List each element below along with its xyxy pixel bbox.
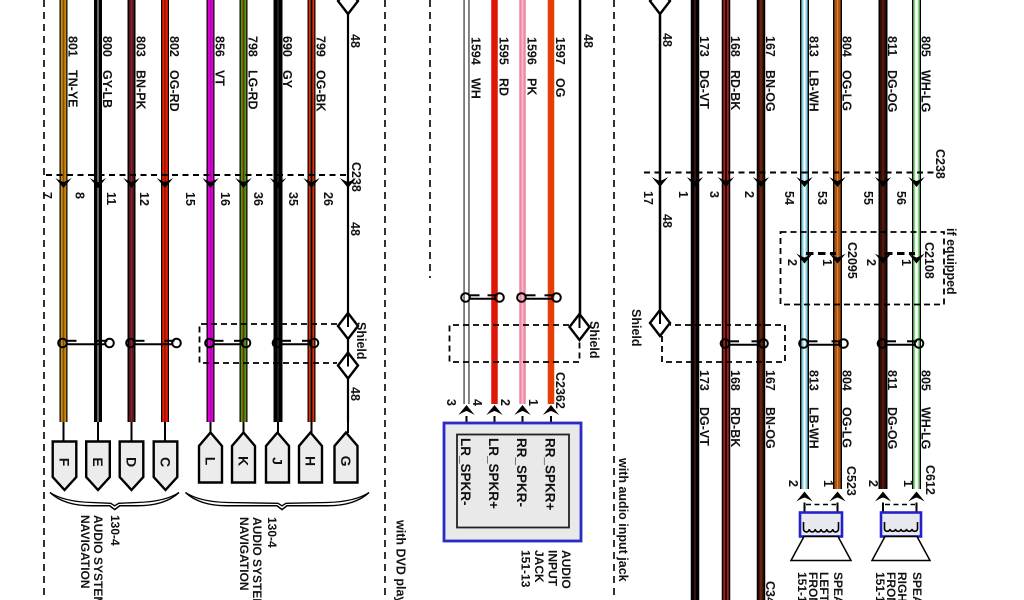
svg-text:48: 48 (660, 214, 674, 228)
svg-text:DG-VT: DG-VT (697, 70, 711, 109)
svg-text:BN-OG: BN-OG (763, 70, 777, 112)
svg-text:12: 12 (137, 192, 151, 206)
svg-text:Shield: Shield (587, 321, 601, 359)
svg-text:4: 4 (470, 399, 484, 406)
svg-text:16: 16 (218, 192, 232, 206)
svg-text:3: 3 (707, 191, 721, 198)
svg-text:26: 26 (321, 192, 335, 206)
svg-text:AUDIO SYSTEM: AUDIO SYSTEM (91, 515, 105, 600)
svg-text:803: 803 (134, 36, 148, 57)
svg-text:1597: 1597 (553, 37, 567, 65)
svg-text:36: 36 (251, 192, 265, 206)
svg-text:48: 48 (348, 387, 362, 401)
svg-text:805: 805 (919, 36, 933, 57)
svg-text:RR_SPKR+: RR_SPKR+ (543, 438, 558, 511)
svg-text:DG-OG: DG-OG (885, 70, 899, 112)
svg-text:2: 2 (785, 259, 799, 266)
svg-text:690: 690 (280, 36, 294, 57)
svg-text:1595: 1595 (497, 37, 511, 65)
svg-text:130-4: 130-4 (265, 517, 279, 548)
svg-text:811: 811 (885, 36, 899, 56)
svg-text:RD-BK: RD-BK (728, 407, 742, 447)
svg-text:VT: VT (213, 70, 227, 86)
svg-text:798: 798 (246, 36, 260, 57)
svg-text:D: D (124, 457, 140, 467)
svg-text:C2108: C2108 (922, 242, 936, 279)
svg-text:OG-LG: OG-LG (840, 407, 854, 448)
svg-text:LB-WH: LB-WH (807, 407, 821, 449)
svg-text:813: 813 (807, 36, 821, 57)
svg-text:SPEAKER: SPEAKER (831, 572, 845, 600)
svg-text:802: 802 (167, 36, 181, 57)
svg-text:OG: OG (553, 78, 567, 97)
svg-text:if equipped: if equipped (944, 228, 958, 295)
svg-text:15: 15 (183, 192, 197, 206)
svg-text:151-13: 151-13 (519, 550, 533, 588)
svg-text:1: 1 (821, 480, 835, 487)
svg-text:856: 856 (213, 36, 227, 57)
svg-text:55: 55 (861, 191, 875, 205)
svg-text:805: 805 (919, 370, 933, 391)
svg-text:35: 35 (286, 192, 300, 206)
svg-text:48: 48 (348, 34, 362, 48)
svg-text:801: 801 (66, 36, 80, 57)
svg-text:H: H (303, 456, 319, 466)
svg-text:151-11: 151-11 (795, 572, 809, 600)
svg-text:1: 1 (676, 191, 690, 198)
svg-text:811: 811 (885, 370, 899, 390)
svg-text:2: 2 (866, 480, 880, 487)
svg-text:800: 800 (100, 36, 114, 57)
svg-text:1594: 1594 (469, 37, 483, 65)
svg-text:54: 54 (782, 191, 796, 205)
svg-text:7: 7 (40, 192, 54, 199)
svg-text:130-4: 130-4 (108, 515, 122, 546)
svg-text:C238: C238 (933, 149, 947, 179)
svg-text:1: 1 (901, 480, 915, 487)
svg-text:NAVIGATION: NAVIGATION (78, 515, 92, 589)
svg-text:J: J (270, 457, 286, 465)
svg-text:C340: C340 (763, 581, 777, 600)
svg-text:RR_SPKR-: RR_SPKR- (514, 438, 529, 507)
svg-text:OG-LG: OG-LG (840, 70, 854, 111)
svg-text:804: 804 (840, 36, 854, 57)
svg-text:173: 173 (697, 370, 711, 391)
svg-text:LG-RD: LG-RD (246, 70, 260, 110)
svg-text:2: 2 (786, 480, 800, 487)
svg-text:BN-OG: BN-OG (763, 407, 777, 449)
svg-text:LB-WH: LB-WH (807, 70, 821, 112)
svg-text:RD: RD (497, 78, 511, 96)
svg-text:INPUT: INPUT (546, 550, 560, 587)
svg-text:8: 8 (73, 192, 87, 199)
svg-text:168: 168 (728, 370, 742, 391)
svg-text:C: C (158, 457, 174, 467)
svg-text:C612: C612 (923, 465, 937, 495)
svg-text:PK: PK (525, 78, 539, 95)
svg-text:C2362: C2362 (553, 372, 567, 409)
svg-text:Shield: Shield (354, 322, 368, 360)
svg-text:OG-RD: OG-RD (167, 70, 181, 112)
svg-text:with DVD player: with DVD player (394, 519, 408, 600)
svg-text:WH-LG: WH-LG (919, 70, 933, 112)
svg-text:DG-VT: DG-VT (697, 407, 711, 446)
svg-text:G: G (338, 456, 354, 467)
svg-text:AUDIO: AUDIO (559, 550, 573, 589)
svg-text:NAVIGATION: NAVIGATION (237, 517, 251, 591)
svg-text:167: 167 (763, 36, 777, 57)
svg-text:48: 48 (348, 222, 362, 236)
svg-text:K: K (236, 456, 252, 466)
svg-text:OG-BK: OG-BK (314, 70, 328, 112)
svg-text:53: 53 (815, 191, 829, 205)
svg-text:Shield: Shield (629, 309, 643, 347)
svg-text:with audio input jack: with audio input jack (616, 457, 630, 582)
svg-text:DG-OG: DG-OG (885, 407, 899, 449)
svg-text:JACK: JACK (532, 550, 546, 583)
svg-text:E: E (90, 457, 106, 466)
svg-text:LR_SPKR+: LR_SPKR+ (486, 438, 501, 509)
svg-text:48: 48 (581, 34, 595, 48)
svg-text:3: 3 (444, 399, 458, 406)
svg-text:2: 2 (864, 259, 878, 266)
svg-text:1: 1 (526, 399, 540, 406)
svg-text:1596: 1596 (525, 37, 539, 65)
svg-text:C523: C523 (844, 466, 858, 496)
svg-text:AUDIO SYSTEM: AUDIO SYSTEM (250, 517, 264, 600)
svg-text:151-12: 151-12 (873, 572, 887, 600)
svg-text:WH: WH (469, 78, 483, 99)
svg-text:17: 17 (641, 191, 655, 205)
svg-text:L: L (203, 457, 219, 466)
svg-text:167: 167 (763, 370, 777, 391)
svg-text:F: F (57, 458, 73, 467)
svg-text:813: 813 (807, 370, 821, 391)
svg-text:1: 1 (899, 259, 913, 266)
svg-text:LR_SPKR-: LR_SPKR- (458, 438, 473, 506)
svg-text:C238: C238 (349, 162, 363, 192)
svg-text:C2095: C2095 (845, 242, 859, 279)
svg-text:804: 804 (840, 370, 854, 391)
svg-text:BN-PK: BN-PK (134, 70, 148, 110)
svg-text:TN-YE: TN-YE (66, 70, 80, 108)
svg-text:GY: GY (280, 70, 294, 89)
svg-text:11: 11 (104, 192, 118, 205)
svg-text:48: 48 (660, 33, 674, 47)
svg-text:799: 799 (314, 36, 328, 57)
svg-text:2: 2 (742, 191, 756, 198)
svg-text:GY-LB: GY-LB (100, 70, 114, 108)
svg-text:2: 2 (498, 399, 512, 406)
svg-text:56: 56 (894, 191, 908, 205)
svg-text:RD-BK: RD-BK (728, 70, 742, 110)
svg-text:168: 168 (728, 36, 742, 57)
svg-text:1: 1 (820, 259, 834, 266)
svg-text:173: 173 (697, 36, 711, 57)
svg-text:WH-LG: WH-LG (919, 407, 933, 449)
svg-text:SPEAKER: SPEAKER (910, 572, 924, 600)
